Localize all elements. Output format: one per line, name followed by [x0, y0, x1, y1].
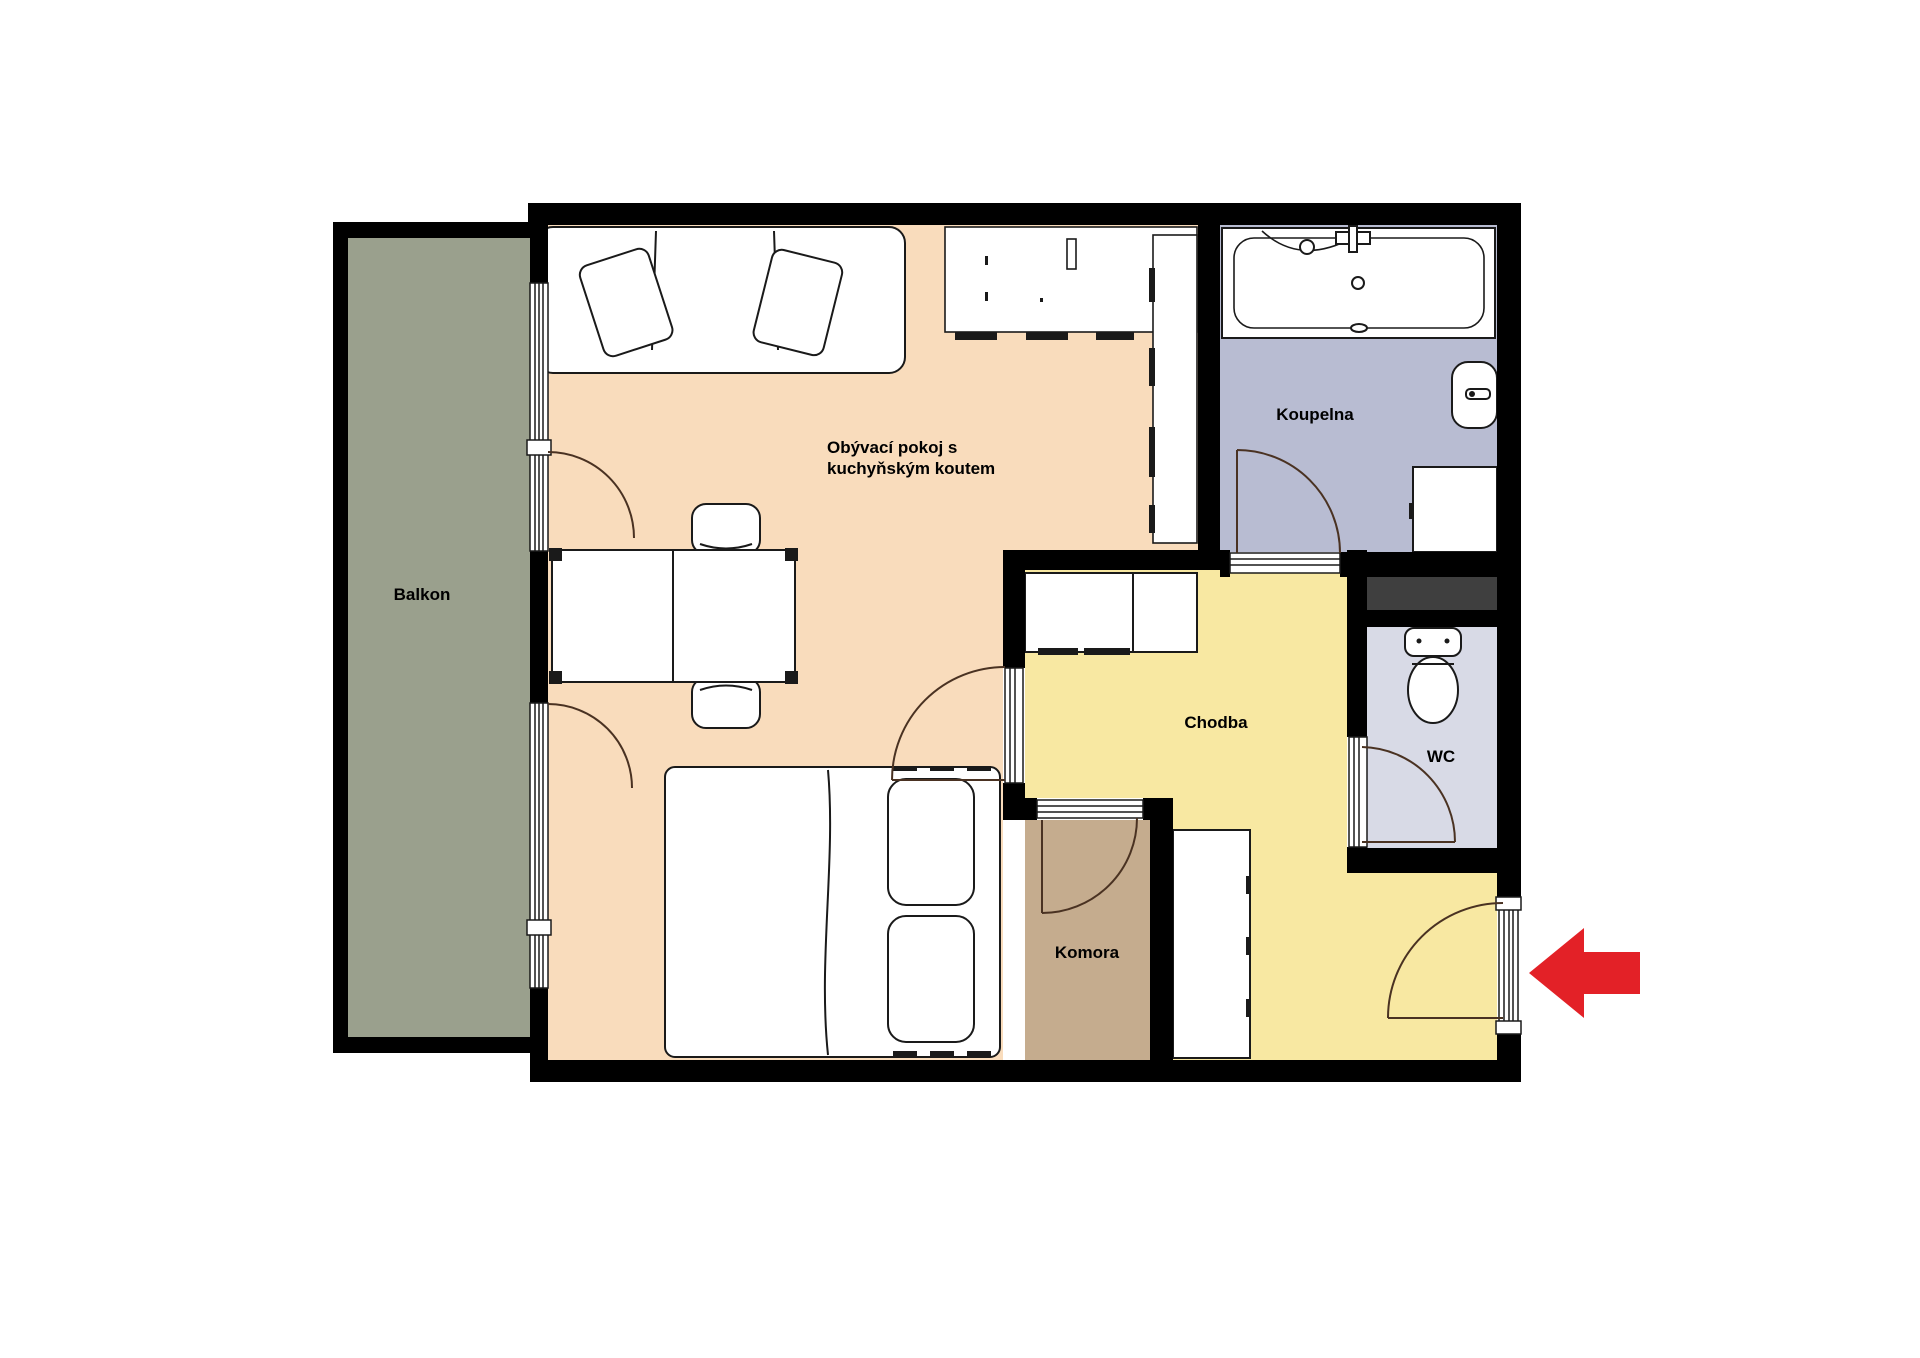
living-room-label-line1: Obývací pokoj s [827, 438, 957, 457]
wall-balcony-top [333, 222, 530, 238]
balcony-label: Balkon [394, 585, 451, 604]
toilet-cistern [1405, 628, 1461, 656]
wc-label: WC [1427, 747, 1455, 766]
balcony-window-joint-1 [527, 440, 551, 455]
storage-label: Komora [1055, 943, 1120, 962]
wall-right-lower [1497, 1028, 1521, 1082]
washbasin [1452, 362, 1497, 428]
entrance-arrow-icon [1529, 928, 1640, 1018]
sofa [537, 227, 905, 373]
bed-pillow-top [888, 779, 974, 905]
wall-living-hall-vertical-lower [1003, 783, 1025, 800]
chair-top [692, 504, 760, 554]
hall-cabinet-handles [1038, 648, 1130, 655]
toilet-cistern-dot-right [1445, 639, 1450, 644]
bed-pillow-bottom [888, 916, 974, 1042]
wall-living-hall-vertical-upper [1003, 550, 1025, 668]
floor-plan: Balkon Obývací pokoj s kuchyňským koutem… [0, 0, 1920, 1358]
bathtub-faucet-knob [1300, 240, 1314, 254]
wall-storage-top-left [1003, 798, 1037, 820]
washing-machine-body [1413, 467, 1497, 552]
bathroom-label: Koupelna [1276, 405, 1354, 424]
bathtub-drain [1352, 277, 1364, 289]
hallway-floor-entry [1347, 873, 1497, 1060]
bathtub-overflow [1351, 324, 1367, 332]
wall-storage-right [1150, 798, 1173, 1060]
living-door-sill [1005, 668, 1023, 783]
hall-cabinet-body [1025, 573, 1197, 652]
washing-machine-handle [1409, 503, 1414, 519]
wall-balcony-partition-mid [530, 551, 548, 703]
hallway-cabinet-side [1173, 830, 1251, 1058]
bathtub-spout [1349, 226, 1357, 252]
entrance-sill-cap-bottom [1496, 1021, 1521, 1034]
wall-balcony-bottom [333, 1037, 530, 1053]
tall-unit-body [1153, 235, 1197, 543]
bathtub [1222, 226, 1495, 338]
wall-left-outer [333, 222, 348, 1053]
utility-shaft [1367, 577, 1497, 610]
bathroom-door-sill [1230, 553, 1340, 573]
washbasin-tap-dot [1469, 391, 1475, 397]
hallway-label: Chodba [1184, 713, 1248, 732]
toilet-cistern-dot-left [1417, 639, 1422, 644]
wall-kitchen-bathroom [1198, 203, 1220, 570]
washing-machine [1409, 467, 1497, 552]
wall-balcony-partition-top [530, 203, 548, 283]
wall-top [528, 203, 1521, 225]
wall-wc-left-upper [1347, 550, 1367, 737]
wall-bottom [530, 1060, 1521, 1082]
storage-floor [1025, 820, 1150, 1060]
bed [665, 766, 1000, 1057]
wall-wc-bottom [1347, 848, 1521, 873]
sink-faucet [1067, 239, 1076, 269]
toilet [1405, 628, 1461, 723]
living-room-label-line2: kuchyňským koutem [827, 459, 995, 478]
storage-door-sill [1037, 800, 1143, 818]
balcony-window-joint-2 [527, 920, 551, 935]
side-cabinet-body [1173, 830, 1250, 1058]
wall-bathroom-bottom-left [1220, 552, 1230, 577]
wall-right-upper [1497, 203, 1521, 903]
hallway-cabinet-top [1025, 573, 1197, 655]
balcony-floor [348, 238, 530, 1037]
toilet-bowl [1408, 657, 1458, 723]
wall-balcony-partition-bottom [530, 988, 548, 1060]
kitchen-tall-unit [1149, 235, 1197, 543]
wc-door-sill [1349, 737, 1367, 847]
wall-wc-top [1347, 610, 1521, 627]
wall-living-hall-horizontal [1003, 550, 1230, 570]
